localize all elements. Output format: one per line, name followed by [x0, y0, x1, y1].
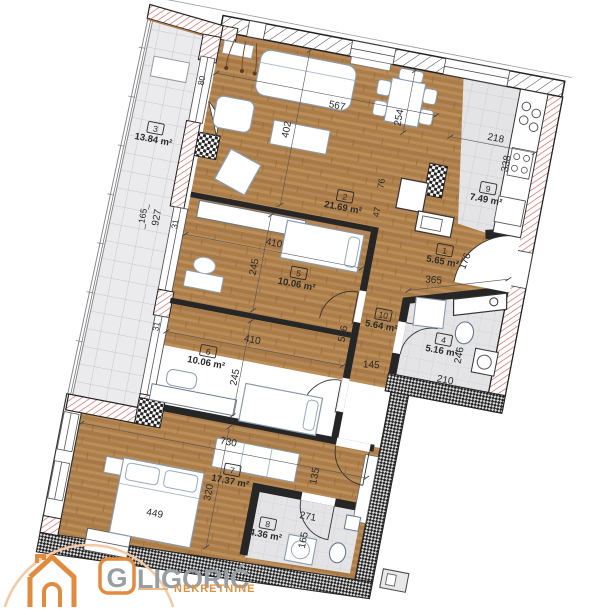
svg-text:NEKRETNINE: NEKRETNINE [174, 583, 256, 595]
svg-text:145: 145 [363, 359, 381, 371]
svg-text:47: 47 [371, 206, 383, 218]
svg-text:76: 76 [375, 178, 387, 190]
svg-text:G: G [106, 563, 127, 593]
svg-text:365: 365 [425, 274, 443, 286]
